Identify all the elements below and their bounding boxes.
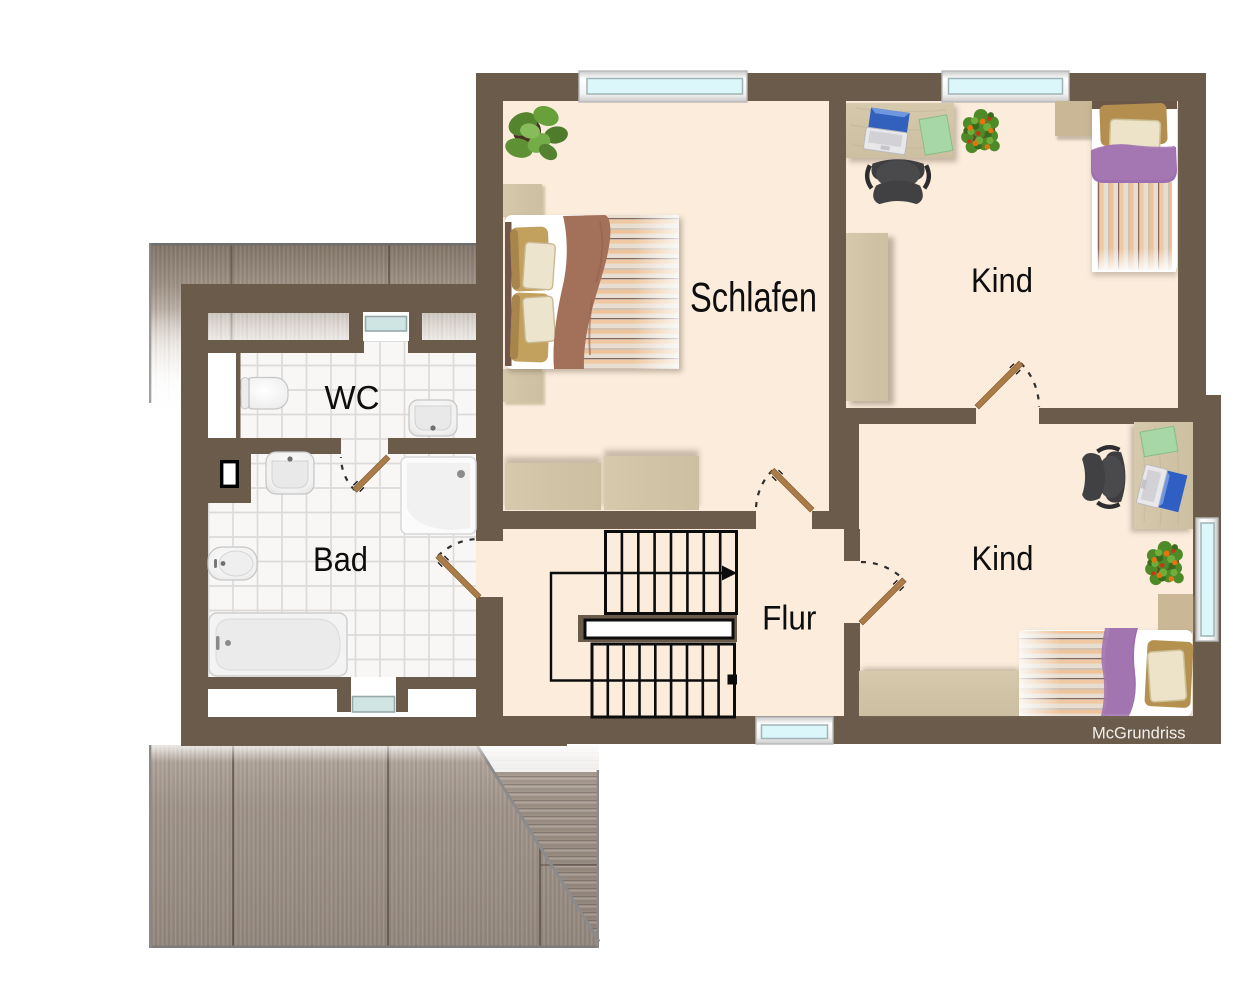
svg-text:Flur: Flur [762, 599, 816, 637]
svg-text:McGrundriss: McGrundriss [1092, 725, 1186, 743]
svg-text:Kind: Kind [972, 540, 1034, 578]
svg-text:Kind: Kind [971, 262, 1033, 300]
svg-text:WC: WC [325, 379, 380, 416]
svg-text:Bad: Bad [313, 541, 368, 579]
svg-text:Schlafen: Schlafen [690, 274, 817, 321]
